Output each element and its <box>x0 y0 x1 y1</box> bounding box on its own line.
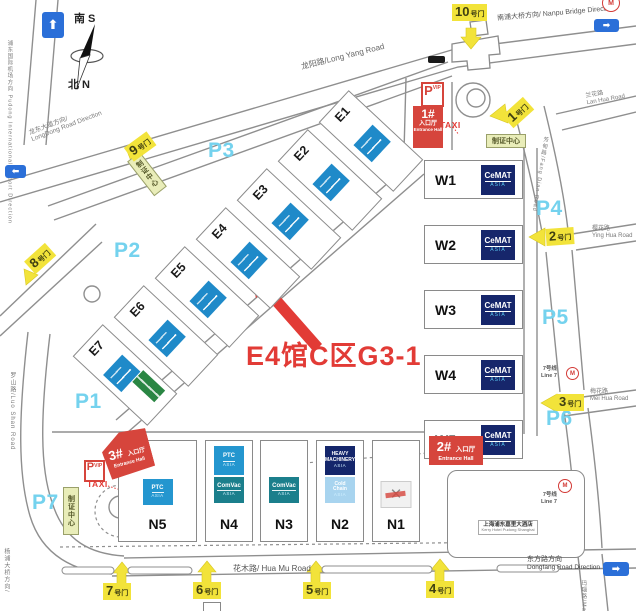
gate-10: 10号门 <box>452 4 487 21</box>
gate-4-num: 4 <box>429 581 436 597</box>
gate-4-suffix: 号门 <box>437 586 451 596</box>
vip-parking-p: P <box>87 462 94 473</box>
road-label-yinghua: 樱花路 Ying Hua Road <box>592 226 632 240</box>
road-label-meihua-zh: 梅花路 <box>590 389 628 396</box>
hall-n3: ComVac ASIA N3 <box>260 440 308 542</box>
lane-pill-3 <box>322 566 432 573</box>
road-label-huamu: 花木路/ Hua Mu Road <box>233 564 311 573</box>
vip-parking-p: P <box>424 84 433 97</box>
direction-arrow-up-icon: ⬆ <box>42 12 64 38</box>
vip-parking-sub: VIP <box>94 464 102 469</box>
parking-p3: P3 <box>208 139 235 163</box>
road-label-dongfang: 东方路方向 Dongfang Road Direction <box>527 556 600 572</box>
heavy-logo-sub: ASIA <box>334 464 346 469</box>
compass-north-label: 北 N <box>68 76 90 92</box>
cemat-asia-logo: CeMAT ASIA <box>481 425 515 455</box>
cemat-logo-text: CeMAT <box>485 172 512 182</box>
hall-w4-label: W4 <box>435 367 456 383</box>
road-yinghua-2 <box>576 241 636 250</box>
line7-zh: 7号线 <box>541 492 557 499</box>
expo-center-map: 南 S 北 N 浦东国际机场方向 Pudong International Ai… <box>0 0 636 611</box>
cold-logo-sub: ASIA <box>334 493 346 498</box>
cemat-logo-sub: ASIA <box>490 313 505 318</box>
hall-n4: PTC ASIA ComVac ASIA N4 <box>205 440 253 542</box>
hall-w1-label: W1 <box>435 172 456 188</box>
road-label-dongfang-en: Dongfang Road Direction <box>527 564 600 571</box>
hall-n2: HEAVY MACHINERY ASIA Cold Chain ASIA N2 <box>316 440 364 542</box>
entrance-hall-1: 1# 入口厅 Entrance Hall <box>413 106 443 148</box>
gate-2-num: 2 <box>548 228 556 244</box>
line7-en: Line 7 <box>541 499 557 506</box>
expo-logo-icon <box>230 242 267 280</box>
hall-w2: W2 CeMAT ASIA <box>424 225 523 264</box>
hall-n5-label: N5 <box>119 516 196 532</box>
gate6-arrow-up <box>198 561 216 583</box>
road-lanhua-2 <box>562 112 636 130</box>
road-label-dongfang-zh: 东方路方向 <box>527 556 600 564</box>
road-label-yinghua-en: Ying Hua Road <box>592 233 632 240</box>
line7-en: Line 7 <box>541 373 557 380</box>
parking-p7: P7 <box>32 491 59 515</box>
road-gate8-1 <box>0 224 96 316</box>
road-left-1 <box>24 0 36 145</box>
kerry-hotel-en: Kerry Hotel Pudong Shanghai <box>480 528 536 533</box>
vip-parking-sub: VIP <box>433 86 441 91</box>
gate-6: 6号门 <box>193 582 221 599</box>
road-label-yinghua-zh: 樱花路 <box>592 226 632 233</box>
expo-logo-icon <box>353 125 390 163</box>
expo-logo-icon <box>103 355 140 393</box>
ptc-logo-text: PTC <box>152 485 164 493</box>
entrance-2-label-en: Entrance Hall <box>429 456 483 462</box>
hall-n1: ✕ N1 <box>372 440 420 542</box>
expo-logo-icon <box>148 320 185 358</box>
crossed-tools-logo: ✕ <box>381 481 412 508</box>
lane-pill-2 <box>128 567 192 574</box>
gate-4: 4号门 <box>426 581 454 598</box>
entr1-corridor-1 <box>404 78 406 152</box>
direction-arrow-left-icon: ⬅ <box>5 165 26 178</box>
comvac-logo-sub: ASIA <box>223 492 235 497</box>
hall-w1: W1 CeMAT ASIA <box>424 160 523 199</box>
entrance-2-label: 入口厅 <box>456 446 476 453</box>
compass-needle-south <box>80 24 95 58</box>
hall-w4: W4 CeMAT ASIA <box>424 355 523 394</box>
hall-w3-label: W3 <box>435 302 456 318</box>
badge-center-tag: 制证中心 <box>486 134 526 148</box>
road-label-yangpu-bridge: 杨浦大桥方向/ <box>2 548 9 610</box>
cemat-asia-logo: CeMAT ASIA <box>481 165 515 195</box>
cut-off-label <box>203 602 221 611</box>
gate-6-suffix: 号门 <box>204 587 218 597</box>
badge-center-tag: 制证中心 <box>63 487 79 535</box>
comvac-logo-text: ComVac <box>217 483 241 491</box>
taxi-stand-label: TAXI <box>87 479 108 489</box>
road-label-manao: 玛瑙路/Ma Nao Road <box>580 580 586 611</box>
cemat-asia-logo: CeMAT ASIA <box>481 360 515 390</box>
entrance-hall-2: 2# 入口厅 Entrance Hall <box>429 436 483 465</box>
gate-5-num: 5 <box>306 582 313 598</box>
lane-pill-1 <box>62 567 114 574</box>
gate-2: 2号门 <box>545 227 574 246</box>
metro-icon: M <box>566 367 579 380</box>
entrance-2-num: 2# <box>437 439 451 454</box>
expo-logo-icon <box>271 203 308 241</box>
gate-10-suffix: 号门 <box>470 9 484 19</box>
compass-south-label: 南 S <box>74 10 95 26</box>
car-icon <box>428 56 445 63</box>
cemat-logo-text: CeMAT <box>485 302 512 312</box>
taxi-stand-label: TAXI <box>440 120 461 130</box>
ptc-logo-sub: ASIA <box>151 494 163 499</box>
road-label-meihua: 梅花路 Mei Hua Road <box>590 389 628 403</box>
road-label-pudong-airport: 浦东国际机场方向 Pudong International Airport Di… <box>6 40 12 220</box>
hall-w3: W3 CeMAT ASIA <box>424 290 523 329</box>
cemat-logo-text: CeMAT <box>485 432 512 442</box>
gate-7-num: 7 <box>106 583 113 599</box>
parking-p4: P4 <box>536 197 563 221</box>
hall-n1-label: N1 <box>373 516 419 532</box>
comvac-logo-sub: ASIA <box>278 492 290 497</box>
small-circle-west <box>84 286 100 302</box>
entrance-1-label-en: Entrance Hall <box>413 128 443 133</box>
gate-10-num: 10 <box>455 4 469 20</box>
hall-n4-label: N4 <box>206 516 252 532</box>
gate-2-suffix: 号门 <box>557 232 572 243</box>
road-label-luoshan: 罗山路/Luo Shan Road <box>8 372 15 472</box>
cemat-logo-sub: ASIA <box>490 443 505 448</box>
vip-parking-badge: PVIP <box>421 82 444 107</box>
road-fangdian-6 <box>588 408 602 548</box>
booth-annotation: E4馆C区G3-1 <box>246 334 422 373</box>
line7-station-label: 7号线 Line 7 <box>541 492 557 505</box>
comvac-asia-logo: ComVac ASIA <box>214 477 244 503</box>
cemat-asia-logo: CeMAT ASIA <box>481 230 515 260</box>
metro-icon: M <box>558 479 572 493</box>
ptc-asia-logo: PTC ASIA <box>214 446 244 475</box>
comvac-asia-logo: ComVac ASIA <box>269 477 299 503</box>
gate-5-suffix: 号门 <box>314 587 328 597</box>
parking-p6: P6 <box>546 407 573 431</box>
dongfang-arrow-right-icon: ➡ <box>603 562 629 576</box>
cemat-asia-logo: CeMAT ASIA <box>481 295 515 325</box>
gate4-arrow-up <box>431 559 449 581</box>
gate-7: 7号门 <box>103 583 131 600</box>
hall-w2-label: W2 <box>435 237 456 253</box>
expo-logo-icon <box>189 281 226 319</box>
comvac-logo-text: ComVac <box>272 483 296 491</box>
expo-logo-icon <box>312 164 349 202</box>
cold-chain-asia-logo: Cold Chain ASIA <box>325 477 355 503</box>
line7-zh: 7号线 <box>541 366 557 373</box>
nanpu-arrow-right-icon: ➡ <box>594 19 619 32</box>
line7-station-label: 7号线 Line 7 <box>541 366 557 379</box>
gate-7-suffix: 号门 <box>114 588 128 598</box>
road-label-meihua-en: Mei Hua Road <box>590 396 628 403</box>
gate-3: 3号门 <box>556 394 584 411</box>
parking-p5: P5 <box>542 306 569 330</box>
parking-p2: P2 <box>114 239 141 263</box>
cemat-logo-text: CeMAT <box>485 237 512 247</box>
ptc-logo-sub: ASIA <box>223 463 235 468</box>
heavy-machinery-asia-logo: HEAVY MACHINERY ASIA <box>325 446 355 475</box>
hall-n3-label: N3 <box>261 516 307 532</box>
cemat-logo-sub: ASIA <box>490 183 505 188</box>
gate-6-num: 6 <box>196 582 203 598</box>
kerry-hotel-label: 上海浦东嘉里大酒店 Kerry Hotel Pudong Shanghai <box>478 520 538 535</box>
ptc-logo-text: PTC <box>223 453 235 461</box>
hall-n2-label: N2 <box>317 516 363 532</box>
cemat-logo-sub: ASIA <box>490 378 505 383</box>
parking-p1: P1 <box>75 390 102 414</box>
gate-3-suffix: 号门 <box>567 399 581 409</box>
cemat-logo-sub: ASIA <box>490 248 505 253</box>
roundabout-inner <box>467 89 485 107</box>
gate-3-num: 3 <box>559 394 566 410</box>
gate-5: 5号门 <box>303 582 331 599</box>
entrance-1-num: 1# <box>413 108 443 121</box>
ptc-asia-logo: PTC ASIA <box>143 479 173 505</box>
cemat-logo-text: CeMAT <box>485 367 512 377</box>
